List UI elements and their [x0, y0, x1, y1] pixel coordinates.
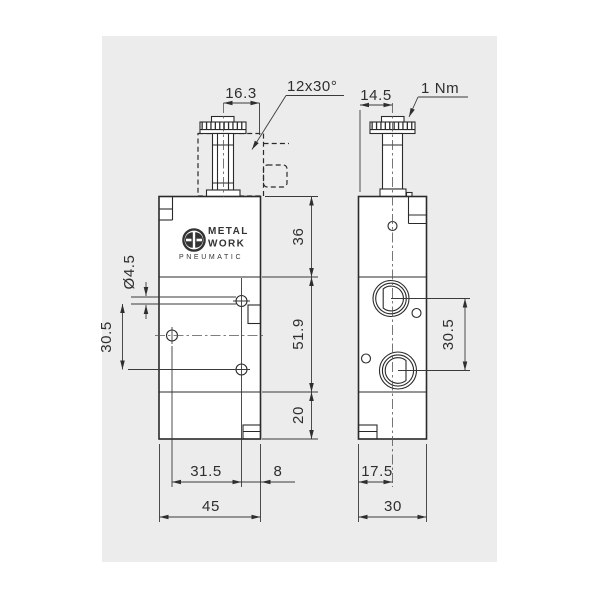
dim-front-width-label: 45	[202, 498, 220, 515]
dim-front-pitchh-label: 31.5	[190, 463, 222, 480]
technical-drawing: METAL WORK PNEUMATIC 16.3 12x30° Ø4.5 30…	[0, 0, 600, 600]
logo-work-text: WORK	[208, 239, 245, 250]
dim-hole-dia-label: Ø4.5	[121, 255, 138, 290]
dim-front-stem-label: 16.3	[225, 85, 257, 102]
torque-label: 1 Nm	[421, 80, 459, 97]
dim-side-pitch-label: 30.5	[440, 319, 457, 351]
chamfer-label: 12x30°	[287, 78, 337, 95]
side-hole-left	[362, 354, 371, 363]
side-hole-right	[412, 309, 421, 318]
dim-side-stem-label: 14.5	[360, 87, 392, 104]
dim-front-secbot-label: 20	[290, 406, 307, 424]
dim-side-port-label: 17.5	[361, 463, 393, 480]
metalwork-logo: METAL WORK PNEUMATIC	[179, 226, 249, 261]
dim-front-pitchv-label: 30.5	[98, 321, 115, 353]
logo-pneumatic-text: PNEUMATIC	[179, 254, 243, 261]
dim-front-sectop-label: 36	[290, 228, 307, 246]
dim-side-width-label: 30	[384, 498, 402, 515]
drawing-page: METAL WORK PNEUMATIC 16.3 12x30° Ø4.5 30…	[0, 0, 600, 600]
dim-front-edge-label: 8	[274, 463, 283, 480]
dim-front-secmid-label: 51.9	[290, 318, 307, 350]
logo-metal-text: METAL	[208, 226, 249, 237]
